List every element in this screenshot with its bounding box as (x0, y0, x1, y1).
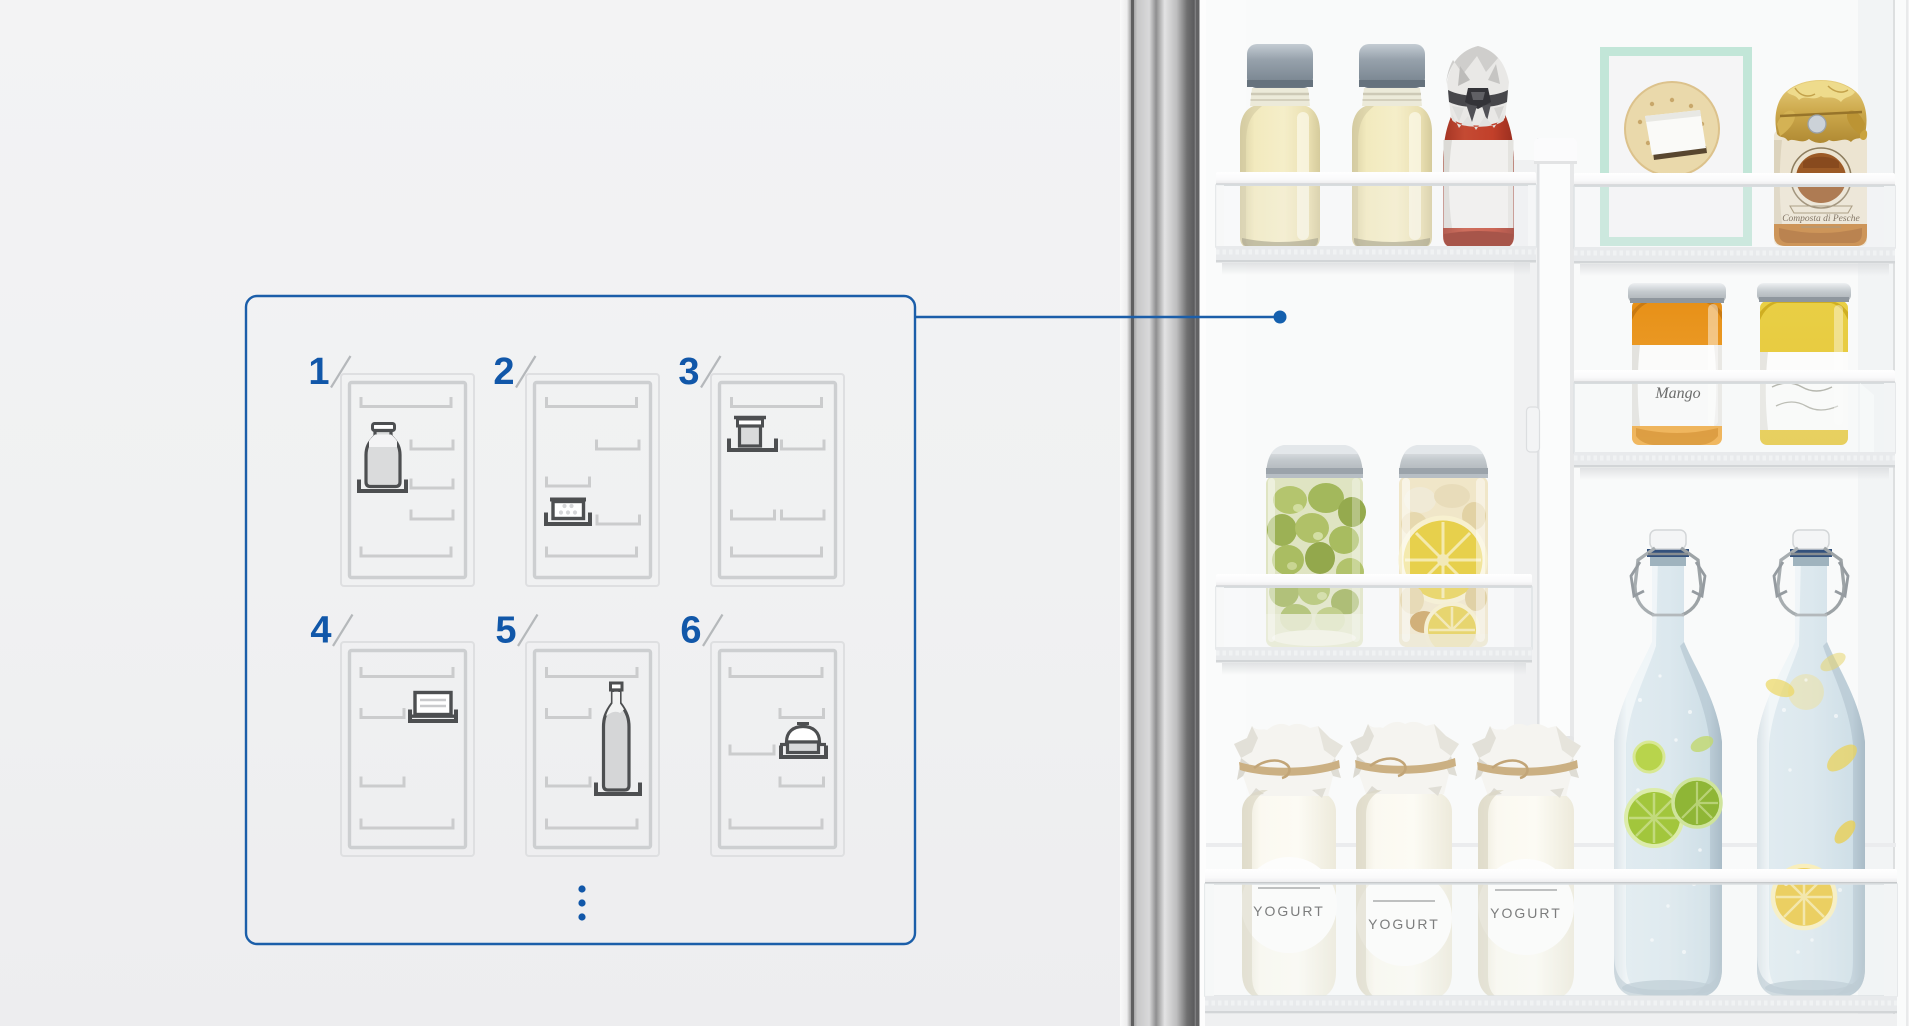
svg-text:5: 5 (495, 610, 516, 652)
svg-text:2: 2 (493, 351, 514, 393)
svg-text:1: 1 (308, 351, 329, 393)
svg-text:4: 4 (310, 610, 331, 652)
svg-text:3: 3 (678, 351, 699, 393)
svg-text:6: 6 (680, 610, 701, 652)
